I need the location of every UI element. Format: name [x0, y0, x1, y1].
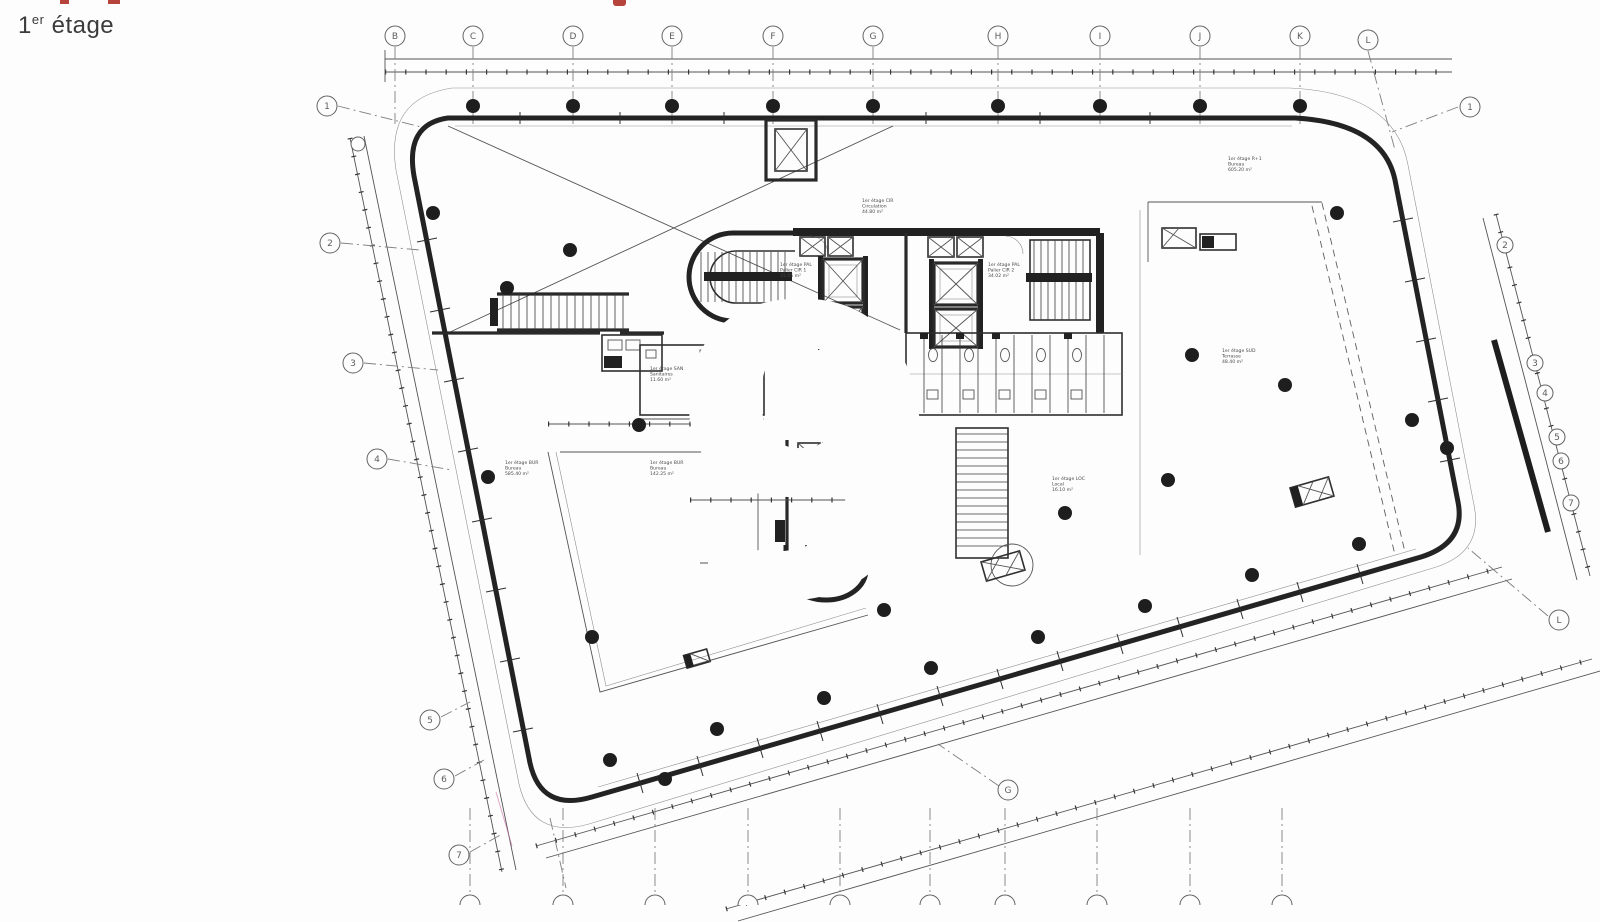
grid-bubbles-right: 1 2 3 4 5 6 7 L: [1460, 97, 1579, 630]
floor-plan-page: 1er étage: [0, 0, 1600, 922]
svg-text:Bureau: Bureau: [1228, 162, 1244, 168]
dimension-chain-left: [350, 136, 516, 872]
svg-text:16.10 m²: 16.10 m²: [1052, 487, 1073, 493]
svg-text:1: 1: [1467, 103, 1473, 113]
svg-text:2: 2: [1502, 241, 1508, 251]
svg-text:1er étage R+1: 1er étage R+1: [1228, 155, 1262, 162]
white-watermark-digit: 9: [668, 258, 948, 658]
svg-text:1er étage PAL: 1er étage PAL: [988, 261, 1020, 268]
stair3: [956, 428, 1008, 558]
room-label-local: 1er étage LOC Local 16.10 m²: [1052, 475, 1085, 493]
grid-bubbles-top: B C D E F G H I J K L: [385, 26, 1378, 50]
svg-text:1er étage LOC: 1er étage LOC: [1052, 475, 1085, 482]
svg-text:J: J: [1198, 32, 1202, 42]
room-label-bureau-right: 1er étage R+1 Bureau 605.20 m²: [1228, 155, 1262, 173]
svg-text:L: L: [1365, 36, 1370, 46]
svg-text:Palier CIR 2: Palier CIR 2: [988, 268, 1014, 274]
svg-text:Bureau: Bureau: [650, 466, 666, 472]
svg-text:I: I: [1099, 32, 1102, 42]
svg-text:3: 3: [1532, 359, 1538, 369]
svg-text:585.40 m²: 585.40 m²: [505, 471, 529, 477]
room-label-terrasse: 1er étage SUD Terrasse 48.40 m²: [1221, 347, 1256, 365]
dimension-chain-top: [385, 50, 1452, 82]
svg-text:2: 2: [327, 239, 333, 249]
svg-text:5: 5: [1554, 433, 1560, 443]
svg-text:605.20 m²: 605.20 m²: [1228, 167, 1252, 173]
svg-text:F: F: [770, 32, 775, 42]
svg-text:5: 5: [427, 716, 433, 726]
grid-bubbles-left: 1 2 3 4 5 6 7: [317, 96, 469, 865]
svg-text:6: 6: [1558, 457, 1564, 467]
svg-text:3: 3: [350, 359, 356, 369]
svg-text:Bureau: Bureau: [505, 466, 521, 472]
svg-text:D: D: [570, 32, 577, 42]
room-label-circulation: 1er étage CIR Circulation 44.80 m²: [862, 197, 894, 215]
top-shaft: [766, 120, 816, 180]
svg-text:7: 7: [1568, 499, 1574, 509]
svg-text:1er étage SUD: 1er étage SUD: [1222, 347, 1256, 354]
svg-text:1er étage BUR: 1er étage BUR: [505, 459, 539, 466]
svg-text:G: G: [1005, 786, 1012, 796]
svg-text:E: E: [669, 32, 675, 42]
svg-text:7: 7: [456, 851, 462, 861]
svg-text:1er étage CIR: 1er étage CIR: [862, 197, 894, 204]
svg-text:H: H: [995, 32, 1002, 42]
dimension-chain-right: [1483, 214, 1590, 580]
room-label-bureau-left: 1er étage BUR Bureau 585.40 m²: [505, 459, 539, 477]
svg-text:4: 4: [374, 455, 380, 465]
svg-text:48.40 m²: 48.40 m²: [1222, 359, 1243, 365]
svg-text:Terrasse: Terrasse: [1221, 354, 1241, 360]
svg-text:L: L: [1556, 616, 1561, 626]
room-label-lobby2: 1er étage PAL Palier CIR 2 34.02 m²: [988, 261, 1020, 279]
svg-text:Local: Local: [1052, 482, 1064, 488]
svg-text:1: 1: [324, 102, 330, 112]
svg-text:G: G: [870, 32, 877, 42]
svg-text:6: 6: [441, 775, 447, 785]
svg-text:44.80 m²: 44.80 m²: [862, 209, 883, 215]
svg-text:34.02 m²: 34.02 m²: [988, 273, 1009, 279]
stair2: [1026, 240, 1092, 320]
svg-text:4: 4: [1542, 389, 1548, 399]
svg-text:C: C: [470, 32, 476, 42]
svg-text:Circulation: Circulation: [862, 204, 887, 210]
svg-text:B: B: [392, 32, 398, 42]
west-stair: [490, 294, 629, 330]
